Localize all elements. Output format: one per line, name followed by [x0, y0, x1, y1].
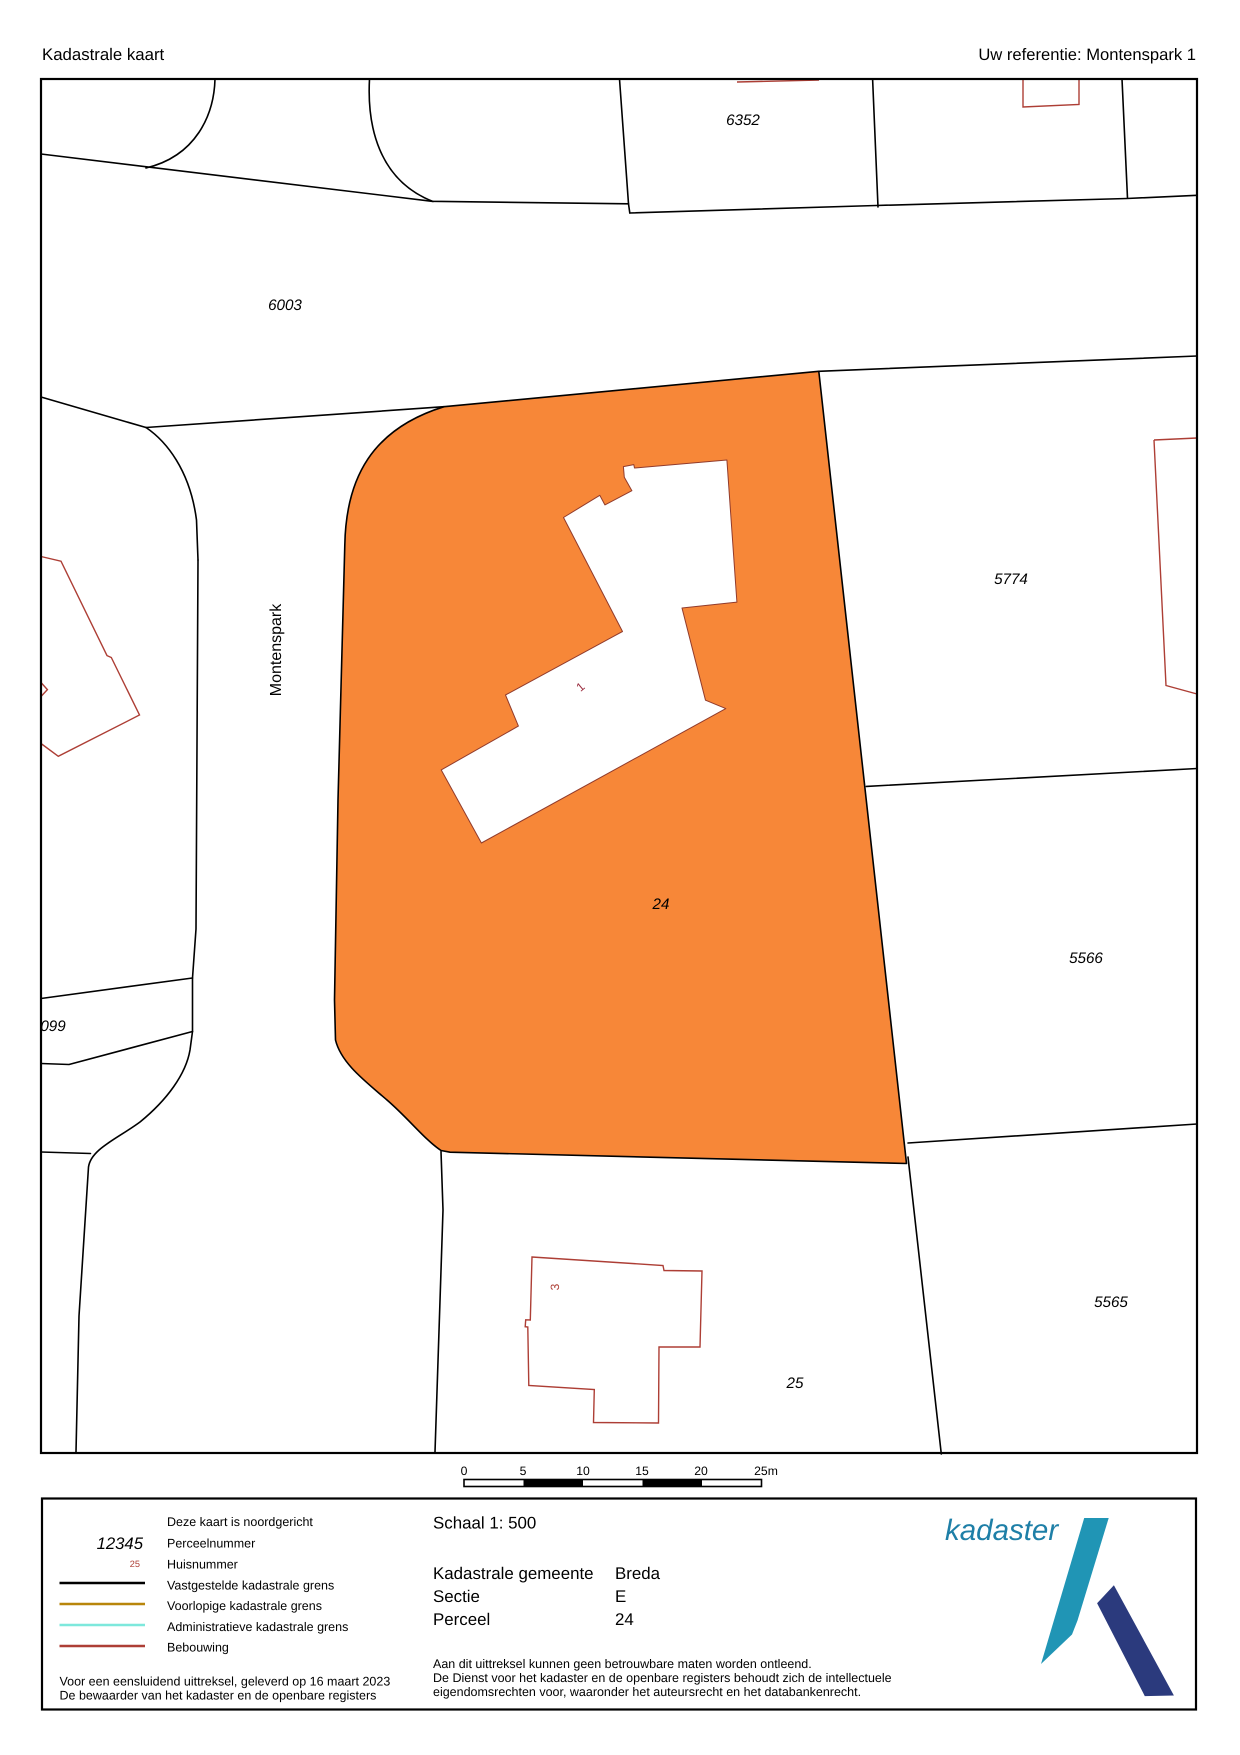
svg-text:15: 15 — [635, 1464, 649, 1478]
svg-text:20: 20 — [694, 1464, 708, 1478]
svg-text:Perceel: Perceel — [433, 1610, 490, 1629]
svg-text:Administratieve kadastrale gre: Administratieve kadastrale grens — [167, 1620, 348, 1634]
svg-text:Vastgestelde kadastrale grens: Vastgestelde kadastrale grens — [167, 1579, 334, 1593]
svg-text:099: 099 — [40, 1018, 66, 1035]
svg-text:24: 24 — [652, 896, 670, 913]
svg-text:E: E — [615, 1587, 626, 1606]
svg-text:Sectie: Sectie — [433, 1587, 480, 1606]
svg-text:3: 3 — [548, 1283, 562, 1290]
svg-text:Voorlopige kadastrale grens: Voorlopige kadastrale grens — [167, 1599, 322, 1613]
svg-text:eigendomsrechten voor, waarond: eigendomsrechten voor, waaronder het aut… — [433, 1685, 861, 1699]
svg-text:Bebouwing: Bebouwing — [167, 1641, 229, 1655]
svg-text:Voor een eensluidend uittrekse: Voor een eensluidend uittreksel, gelever… — [60, 1675, 391, 1689]
svg-text:Kadastrale gemeente: Kadastrale gemeente — [433, 1564, 594, 1583]
svg-text:25: 25 — [130, 1559, 140, 1569]
svg-text:6003: 6003 — [268, 297, 302, 314]
svg-text:Montenspark: Montenspark — [268, 603, 285, 696]
svg-text:Uw referentie: Montenspark 1: Uw referentie: Montenspark 1 — [978, 45, 1196, 64]
svg-text:De Dienst voor het kadaster en: De Dienst voor het kadaster en de openba… — [433, 1671, 892, 1685]
svg-text:Deze kaart is noordgericht: Deze kaart is noordgericht — [167, 1515, 313, 1529]
svg-text:Schaal 1: 500: Schaal 1: 500 — [433, 1514, 536, 1533]
svg-text:25: 25 — [786, 1375, 804, 1392]
svg-text:5: 5 — [520, 1464, 527, 1478]
svg-text:Aan dit uittreksel kunnen geen: Aan dit uittreksel kunnen geen betrouwba… — [433, 1657, 812, 1671]
svg-text:kadaster: kadaster — [945, 1514, 1059, 1547]
svg-text:5774: 5774 — [994, 571, 1028, 588]
svg-text:25m: 25m — [754, 1464, 778, 1478]
svg-text:0: 0 — [461, 1464, 468, 1478]
svg-text:Breda: Breda — [615, 1564, 661, 1583]
svg-text:5566: 5566 — [1069, 950, 1103, 967]
svg-text:5565: 5565 — [1094, 1294, 1128, 1311]
svg-text:Perceelnummer: Perceelnummer — [167, 1537, 255, 1551]
svg-text:10: 10 — [576, 1464, 590, 1478]
svg-text:24: 24 — [615, 1610, 634, 1629]
svg-text:Huisnummer: Huisnummer — [167, 1558, 238, 1572]
svg-text:De bewaarder van het kadaster: De bewaarder van het kadaster en de open… — [60, 1689, 377, 1703]
svg-text:Kadastrale kaart: Kadastrale kaart — [42, 45, 165, 64]
svg-text:12345: 12345 — [97, 1534, 144, 1553]
svg-text:6352: 6352 — [726, 112, 760, 129]
